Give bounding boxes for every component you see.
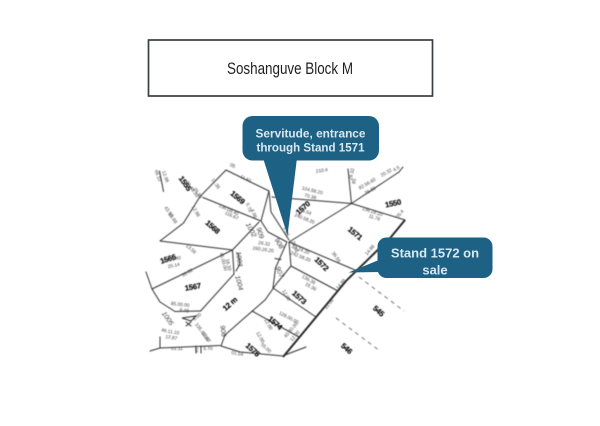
svg-text:through Stand 1571: through Stand 1571	[257, 141, 365, 155]
svg-text:Stand 1572 on: Stand 1572 on	[391, 246, 479, 261]
svg-text:5.70: 5.70	[203, 346, 213, 352]
svg-text:41: 41	[194, 347, 200, 353]
svg-text:Soshanguve Block M: Soshanguve Block M	[227, 60, 353, 78]
svg-text:sale: sale	[422, 263, 447, 278]
svg-text:Servitude, entrance: Servitude, entrance	[256, 127, 366, 141]
svg-text:8.48: 8.48	[179, 308, 189, 315]
svg-text:01.11: 01.11	[171, 346, 183, 352]
